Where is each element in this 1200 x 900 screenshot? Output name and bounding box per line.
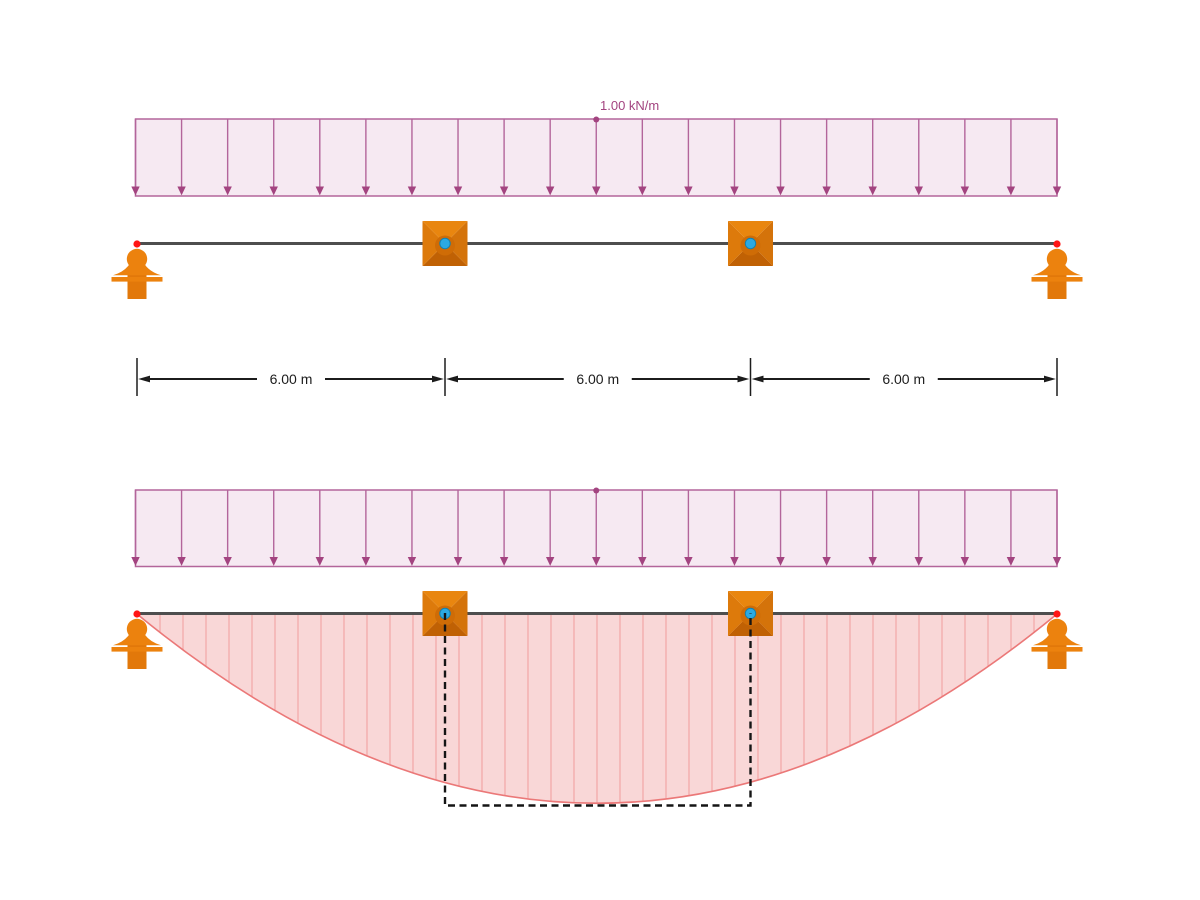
support-flange (112, 277, 163, 282)
moment-diagram[interactable] (137, 614, 1057, 803)
load-reference-dot (593, 117, 599, 123)
support-head (127, 249, 147, 269)
support-node-dot (1053, 240, 1060, 247)
pin-support-left[interactable] (112, 240, 163, 299)
load-magnitude-label: 1.00 kN/m (600, 98, 659, 113)
support-head (127, 619, 147, 639)
pin-support-right[interactable] (1032, 240, 1083, 299)
support-node-dot (1053, 610, 1060, 617)
support-flange (1032, 277, 1083, 282)
beam-diagram-svg: 1.00 kN/m 6.00 m6.00 m6.00 m (0, 0, 1200, 900)
connection-node-2[interactable] (728, 221, 773, 266)
load-label-group: 1.00 kN/m (600, 98, 659, 113)
distributed-load-top[interactable] (131, 117, 1061, 197)
support-head (1047, 249, 1067, 269)
support-node-dot (133, 610, 140, 617)
dimension-lines: 6.00 m6.00 m6.00 m (137, 358, 1057, 396)
dimension-label: 6.00 m (882, 371, 925, 387)
dimension-label: 6.00 m (270, 371, 313, 387)
load-reference-dot (593, 488, 599, 494)
structural-model-canvas: 1.00 kN/m 6.00 m6.00 m6.00 m (0, 0, 1200, 900)
support-flange (1032, 647, 1083, 652)
node-center-dot (440, 238, 450, 248)
node-center-dot (745, 238, 755, 248)
support-flange (112, 647, 163, 652)
supports-top[interactable] (112, 240, 1083, 299)
distributed-load-bottom[interactable] (131, 488, 1061, 567)
connection-node-1[interactable] (423, 221, 468, 266)
support-node-dot (133, 240, 140, 247)
support-head (1047, 619, 1067, 639)
dimension-label: 6.00 m (576, 371, 619, 387)
